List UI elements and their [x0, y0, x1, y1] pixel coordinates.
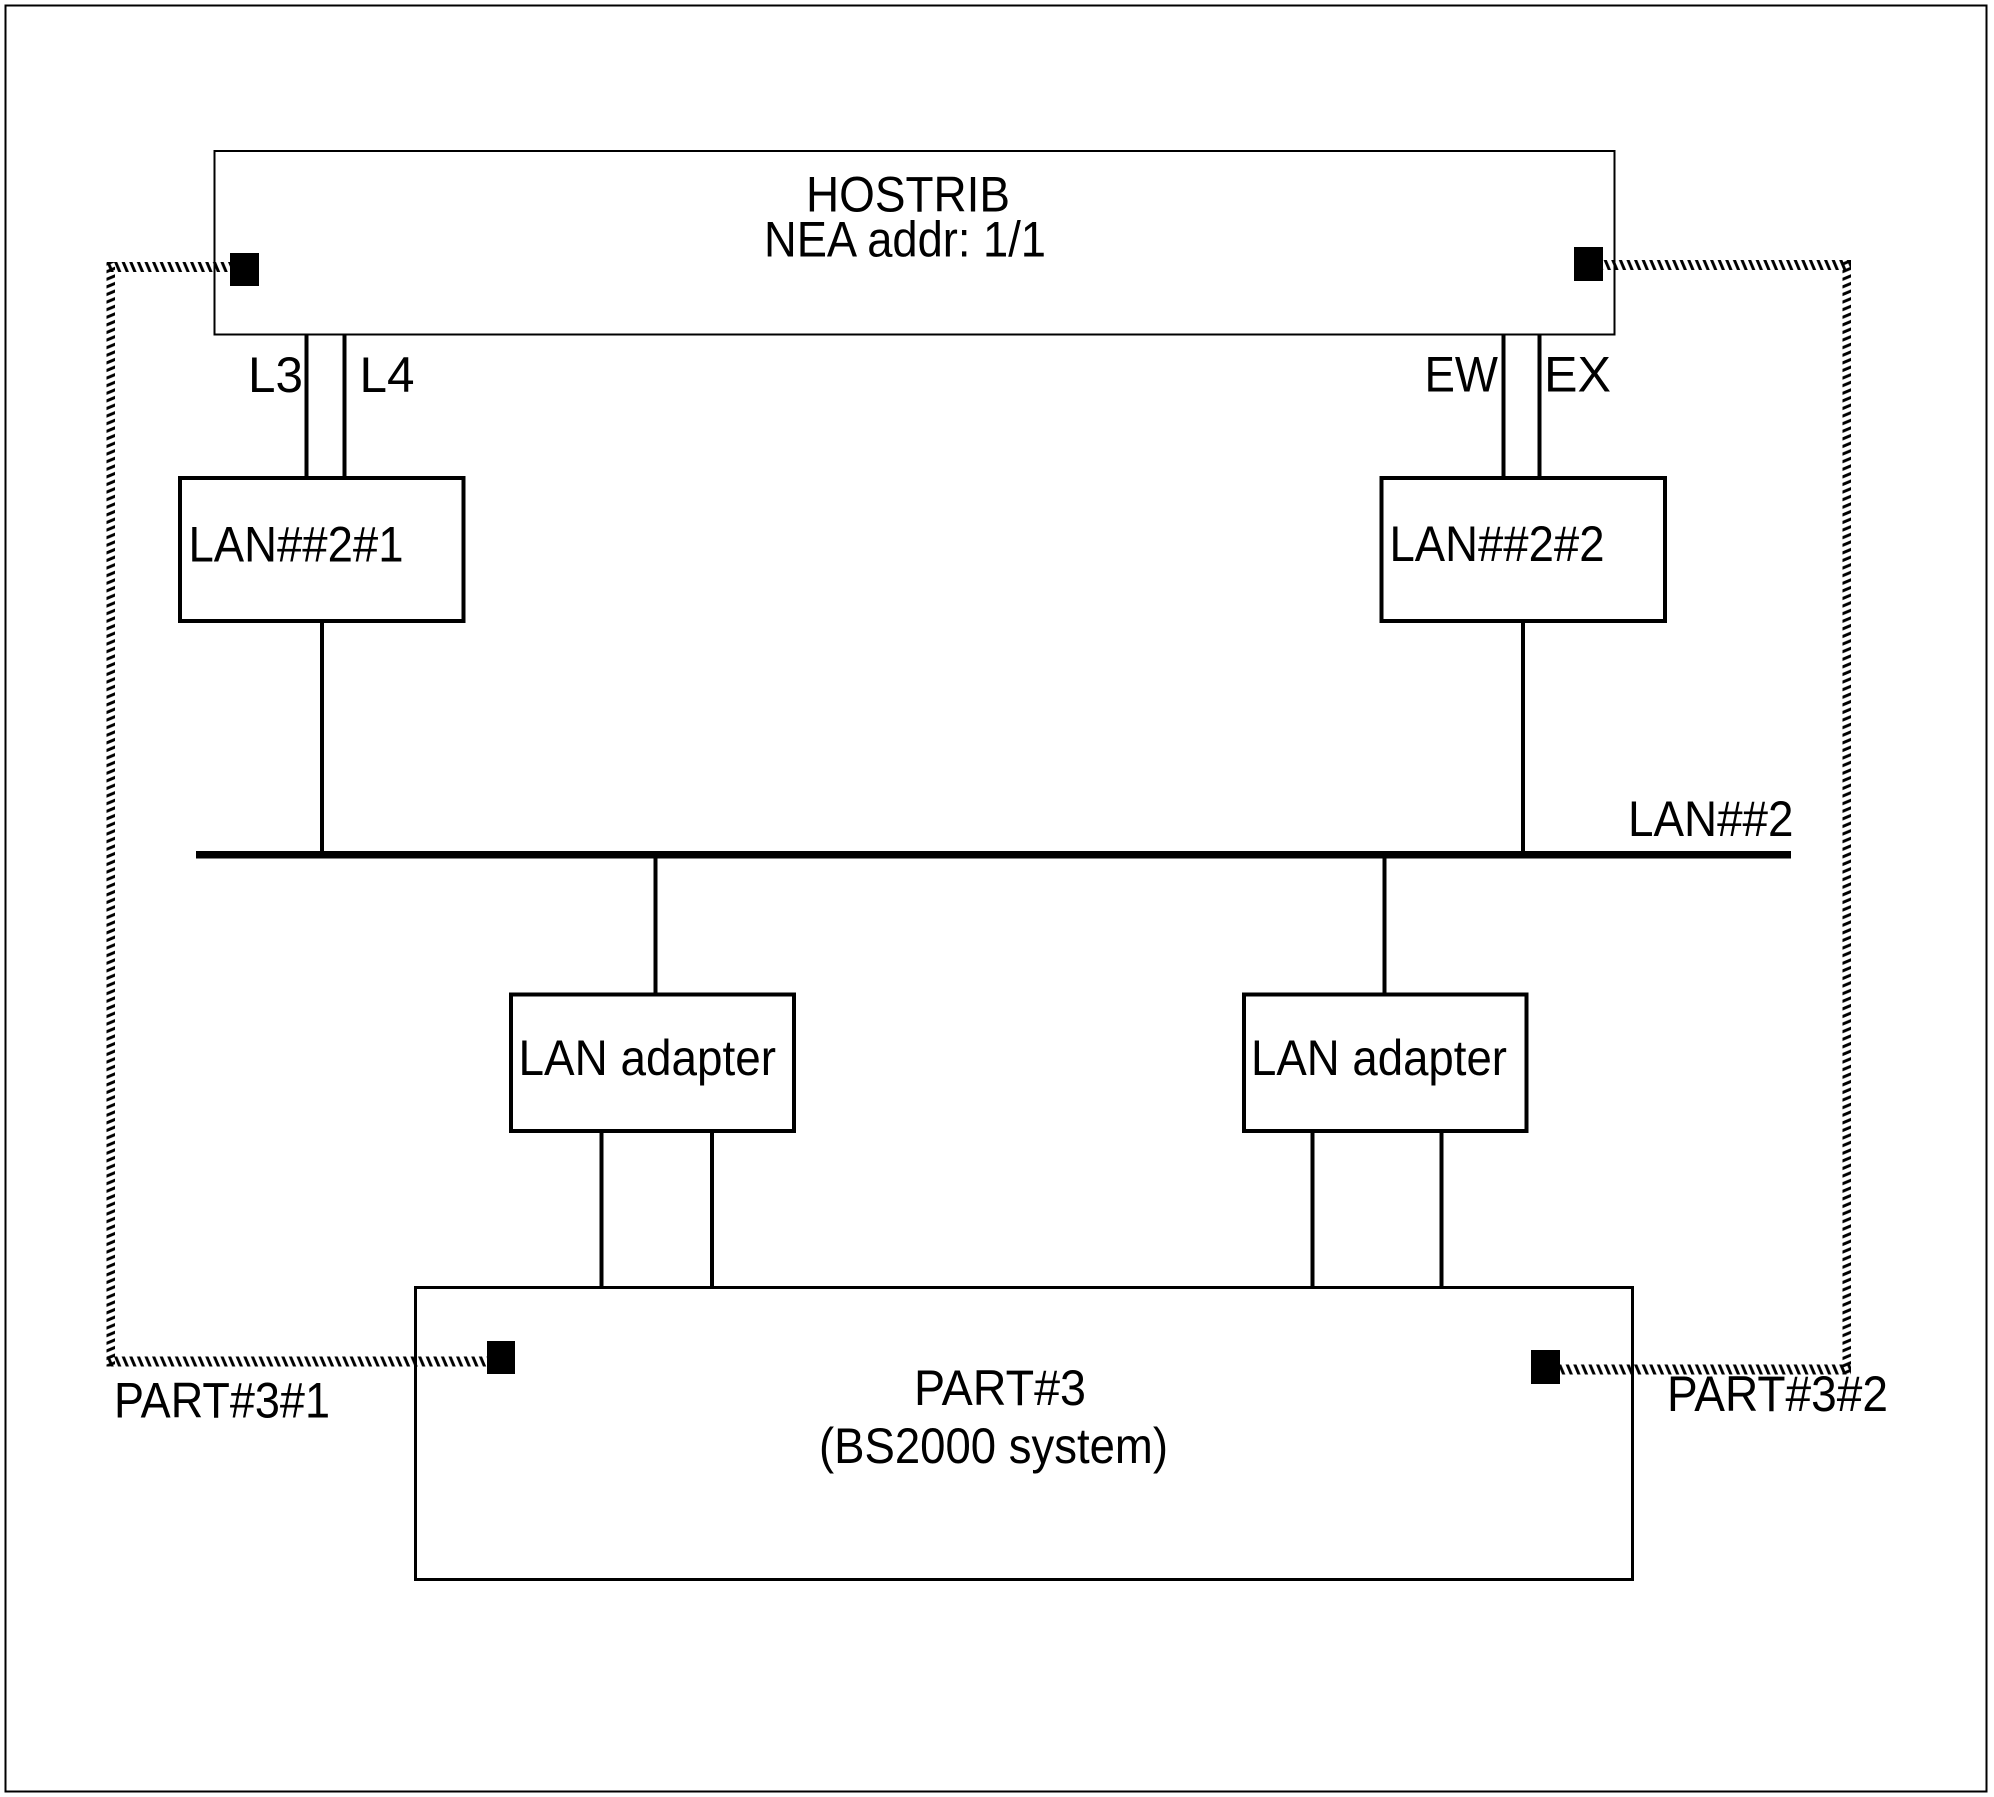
svg-text:PART#3: PART#3 [914, 1360, 1086, 1416]
svg-text:PART#3#1: PART#3#1 [114, 1373, 330, 1429]
svg-text:(BS2000 system): (BS2000 system) [819, 1418, 1168, 1474]
svg-text:NEA addr: 1/1: NEA addr: 1/1 [764, 212, 1046, 268]
svg-text:L4: L4 [360, 347, 415, 403]
svg-text:LAN##2#1: LAN##2#1 [189, 517, 404, 573]
svg-text:L3: L3 [248, 347, 303, 403]
svg-text:LAN##2#2: LAN##2#2 [1390, 516, 1605, 572]
svg-text:EX: EX [1544, 347, 1611, 403]
svg-text:LAN##2: LAN##2 [1628, 791, 1794, 847]
svg-text:PART#3#2: PART#3#2 [1667, 1366, 1888, 1422]
svg-text:LAN adapter: LAN adapter [1251, 1030, 1507, 1086]
svg-text:EW: EW [1425, 347, 1499, 403]
svg-text:LAN adapter: LAN adapter [519, 1030, 777, 1086]
